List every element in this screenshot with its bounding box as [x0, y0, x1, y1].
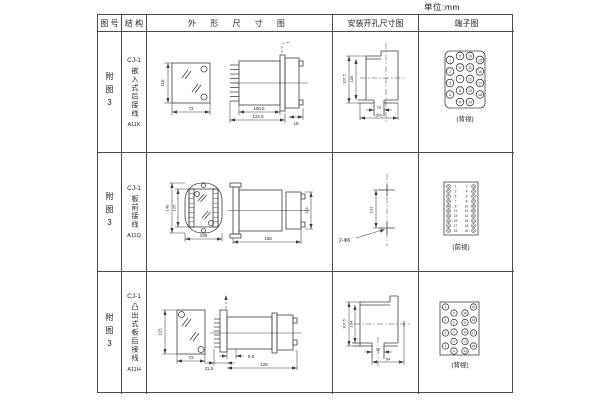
- dim-label: 115: [304, 206, 309, 213]
- svg-text:15: 15: [454, 219, 458, 223]
- dim-label: 15: [293, 121, 299, 126]
- dim-front-width: 105: [185, 233, 222, 242]
- svg-text:18: 18: [465, 223, 469, 227]
- terminal-circles: [446, 184, 475, 232]
- header-mounting: 安装开孔尺寸图: [333, 15, 419, 32]
- unit-label: 单位:mm: [424, 1, 460, 13]
- model-label: CJ-1: [127, 57, 141, 64]
- dim-label: 126: [260, 362, 268, 367]
- svg-text:5: 5: [453, 311, 455, 315]
- terminal-diagram-cell-a11k: 1234 56789 1011121314 15161718 (背视): [419, 32, 514, 153]
- terminal-diagram-a11h: 1234 56789 1011121314 15161718 (背视): [420, 273, 513, 393]
- dim-label: 107.5: [341, 73, 346, 84]
- svg-text:11: 11: [468, 65, 472, 69]
- svg-text:6: 6: [466, 194, 468, 198]
- dim-label: 16: [375, 347, 380, 352]
- side-view: [228, 183, 310, 238]
- terminal-diagram-a11q: 12 34 56 78 910 1112 1314 1516 1718 1920…: [420, 154, 513, 271]
- front-view: [177, 310, 205, 354]
- dim-overall-length: 126: [227, 350, 297, 370]
- mounting-drawing-a11k: 107.5 105 16 (64): [334, 33, 418, 152]
- svg-text:13: 13: [463, 340, 467, 344]
- front-view: [185, 183, 222, 233]
- svg-text:11: 11: [463, 321, 466, 325]
- mounting-drawing-a11h: 107.5 104 16 64: [334, 273, 418, 393]
- svg-text:4: 4: [466, 189, 468, 193]
- svg-text:13: 13: [454, 214, 458, 218]
- svg-text:16: 16: [478, 69, 482, 73]
- fig-no-label: 附图3: [104, 72, 115, 112]
- svg-text:8: 8: [466, 199, 468, 203]
- svg-text:6: 6: [459, 65, 461, 69]
- dim-front-width: 72: [177, 354, 205, 364]
- dimension-table: 图 号 结 构 外 形 尺 寸 图 安装开孔尺寸图 端子图 附图3 CJ-1 嵌…: [97, 14, 513, 393]
- model-label: CJ-1: [127, 293, 141, 300]
- mounting-drawing-cell-a11h: 107.5 104 16 64: [333, 272, 419, 394]
- svg-text:3: 3: [449, 81, 451, 85]
- svg-text:9: 9: [453, 349, 455, 353]
- svg-text:18: 18: [472, 344, 476, 348]
- dim-inner-height: 105: [349, 59, 358, 100]
- svg-text:17: 17: [472, 331, 476, 335]
- dim-label: 122.5: [252, 114, 264, 119]
- svg-text:5: 5: [455, 194, 457, 198]
- type-code-label: A11Q: [127, 233, 141, 239]
- terminal-numbers: 1234 56789 1011121314 15161718: [449, 54, 482, 104]
- view-label: (背视): [456, 114, 473, 123]
- svg-text:13: 13: [468, 88, 472, 92]
- dim-label: 107.5: [341, 318, 346, 329]
- mounting-drawing-cell-a11k: 107.5 105 16 (64): [333, 32, 419, 153]
- svg-text:10: 10: [465, 204, 469, 208]
- type-code-label: A11K: [127, 122, 140, 128]
- svg-text:15: 15: [472, 305, 476, 309]
- header-terminal: 端子图: [419, 15, 514, 32]
- svg-text:16: 16: [472, 318, 476, 322]
- side-view: [210, 295, 302, 353]
- dim-label: 156: [264, 236, 272, 241]
- outline-drawing-a11k: 115 72 100.5: [148, 33, 332, 152]
- dim-label: 131: [368, 205, 373, 212]
- terminal-block: [444, 182, 478, 235]
- structure-label: 板前接线: [129, 195, 139, 229]
- svg-text:19: 19: [454, 228, 458, 232]
- svg-text:14: 14: [468, 100, 472, 104]
- model-label: CJ-1: [127, 185, 141, 192]
- view-label: (背视): [451, 360, 468, 369]
- dim-front-height-inner: 125: [171, 189, 189, 227]
- dim-tail-length: 15: [289, 108, 303, 126]
- side-view: [230, 42, 308, 111]
- header-fig-no: 图 号: [98, 15, 122, 32]
- mounting-drawing-a11q: 131 2-Φ6: [334, 154, 418, 271]
- dim-label: 115: [160, 78, 165, 86]
- header-structure: 结 构: [122, 15, 147, 32]
- dim-label: 105: [349, 74, 354, 81]
- svg-text:12: 12: [463, 330, 467, 334]
- svg-text:16: 16: [465, 219, 469, 223]
- svg-text:3: 3: [455, 189, 457, 193]
- svg-text:1: 1: [449, 58, 451, 62]
- type-code-label: A11H: [127, 367, 140, 373]
- svg-text:7: 7: [453, 330, 455, 334]
- dim-label: 125: [171, 203, 176, 210]
- svg-text:9: 9: [459, 100, 461, 104]
- terminal-diagram-cell-a11q: 12 34 56 78 910 1112 1314 1516 1718 1920…: [419, 153, 514, 272]
- svg-text:15: 15: [478, 58, 482, 62]
- svg-text:8: 8: [459, 88, 461, 92]
- svg-text:17: 17: [478, 81, 482, 85]
- fig-no-label: 附图3: [104, 313, 115, 353]
- terminal-diagram-a11k: 1234 56789 1011121314 15161718 (背视): [420, 33, 513, 152]
- svg-text:14: 14: [465, 214, 469, 218]
- dim-label: 105: [199, 233, 207, 238]
- dim-front-height: 115: [160, 63, 173, 103]
- structure-label: 嵌入式后接线: [129, 67, 139, 118]
- svg-text:7: 7: [455, 199, 457, 203]
- structure-label: 凸出式板后接线: [129, 303, 139, 363]
- view-label: (前视): [452, 242, 469, 251]
- svg-text:4: 4: [445, 344, 447, 348]
- svg-text:5: 5: [459, 54, 461, 58]
- dim-hole-distance: 131: [368, 190, 384, 228]
- outline-drawing-a11h: 115 72 9.5: [148, 273, 332, 393]
- structure-cell-a11q: CJ-1 板前接线 A11Q: [122, 153, 147, 272]
- svg-text:9: 9: [455, 204, 457, 208]
- dim-label: 16: [376, 104, 381, 109]
- svg-text:1: 1: [455, 184, 457, 188]
- dim-label: 100.5: [253, 106, 265, 111]
- svg-text:17: 17: [454, 223, 458, 227]
- dim-label: 31.5: [204, 366, 213, 371]
- dim-label: 115: [157, 328, 162, 336]
- fig-no-cell-a11q: 附图3: [98, 153, 122, 272]
- svg-text:2: 2: [466, 184, 468, 188]
- outline-drawing-cell-a11k: 115 72 100.5: [147, 32, 333, 153]
- dim-label: 104: [348, 320, 353, 327]
- dim-front-width: 72: [172, 103, 210, 115]
- dim-label: 72: [188, 355, 194, 360]
- svg-text:14: 14: [463, 349, 467, 353]
- structure-cell-a11h: CJ-1 凸出式板后接线 A11H: [122, 272, 147, 394]
- header-outline: 外 形 尺 寸 图: [147, 15, 333, 32]
- svg-text:11: 11: [454, 209, 458, 213]
- dim-front-height: 115: [157, 310, 177, 354]
- fig-no-label: 附图3: [104, 192, 115, 232]
- svg-text:10: 10: [463, 311, 467, 315]
- svg-text:12: 12: [465, 209, 469, 213]
- svg-text:10: 10: [468, 54, 472, 58]
- dim-label: 72: [188, 106, 194, 111]
- hole-note-label: 2-Φ6: [339, 238, 350, 244]
- svg-text:1: 1: [445, 305, 447, 309]
- dim-label: 64: [385, 357, 390, 362]
- dim-label: 140: [164, 203, 169, 210]
- fig-no-cell-a11h: 附图3: [98, 272, 122, 394]
- dim-step-length: 9.5: [219, 349, 255, 359]
- svg-text:4: 4: [449, 92, 451, 96]
- document-page: { "unit_label": "单位:mm", "header": { "fi…: [0, 0, 600, 400]
- dim-label: 9.5: [247, 354, 254, 359]
- svg-text:12: 12: [468, 77, 472, 81]
- svg-text:3: 3: [445, 331, 447, 335]
- svg-text:7: 7: [459, 77, 461, 81]
- svg-text:2: 2: [445, 318, 447, 322]
- terminal-diagram-cell-a11h: 1234 56789 1011121314 15161718 (背视): [419, 272, 514, 394]
- dim-label: (64): [375, 112, 383, 117]
- outline-drawing-a11q: 140 125 105: [148, 154, 332, 271]
- svg-text:2: 2: [449, 69, 451, 73]
- structure-cell-a11k: CJ-1 嵌入式后接线 A11K: [122, 32, 147, 153]
- front-view: [172, 63, 210, 103]
- dim-slot-width: 16: [366, 104, 392, 111]
- outline-drawing-cell-a11q: 140 125 105: [147, 153, 333, 272]
- svg-text:6: 6: [453, 321, 455, 325]
- mounting-drawing-cell-a11q: 131 2-Φ6: [333, 153, 419, 272]
- svg-text:20: 20: [465, 228, 469, 232]
- svg-text:18: 18: [478, 92, 482, 96]
- fig-no-cell-a11k: 附图3: [98, 32, 122, 153]
- hole-callout: 2-Φ6: [339, 229, 385, 244]
- terminal-numbers: 12 34 56 78 910 1112 1314 1516 1718 1920: [454, 184, 469, 232]
- terminal-numbers: 1234 56789 1011121314 15161718: [445, 305, 476, 353]
- svg-text:8: 8: [453, 340, 455, 344]
- outline-drawing-cell-a11h: 115 72 9.5: [147, 272, 333, 394]
